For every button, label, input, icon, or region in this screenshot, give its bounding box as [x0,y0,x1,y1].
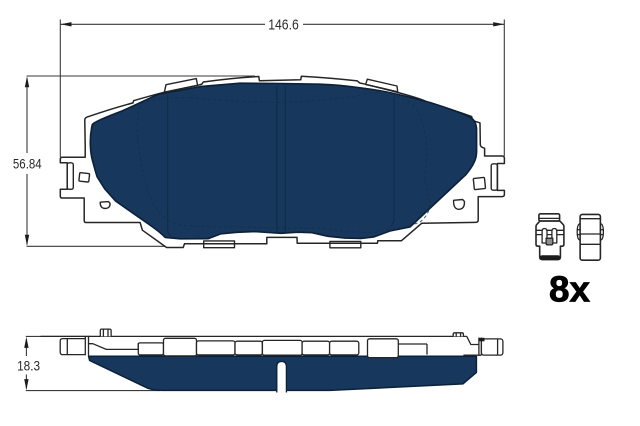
svg-text:146.6: 146.6 [268,17,299,34]
svg-text:8x: 8x [549,269,590,310]
svg-text:56.84: 56.84 [13,156,42,172]
svg-text:18.3: 18.3 [17,358,40,374]
